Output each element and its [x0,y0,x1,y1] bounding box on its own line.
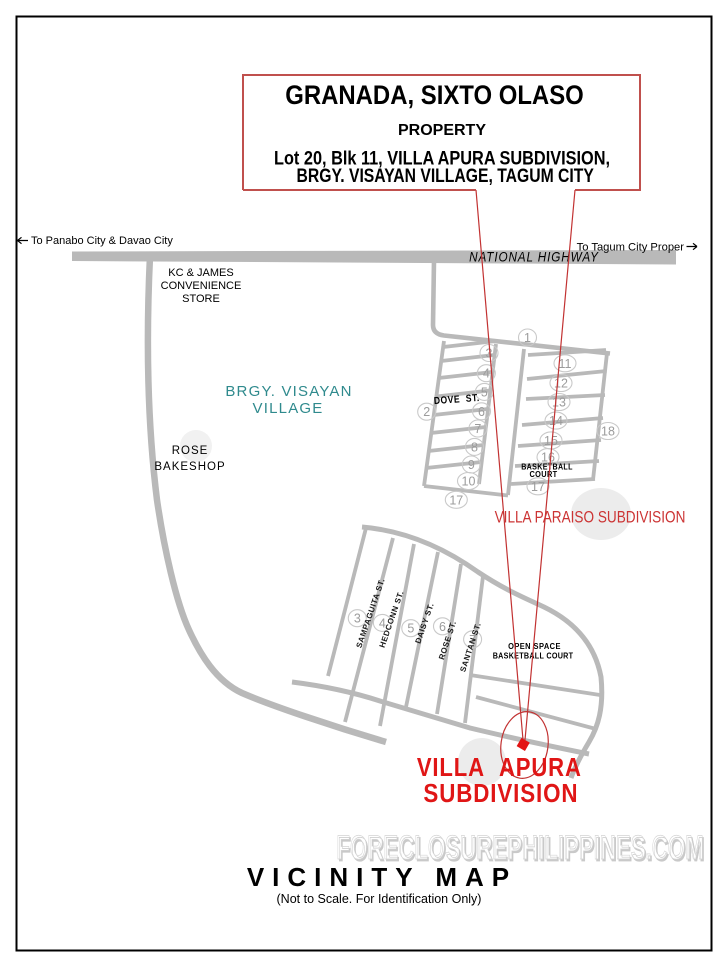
svg-text:18: 18 [601,425,615,439]
svg-text:15: 15 [544,434,558,448]
svg-text:STORE: STORE [182,293,220,305]
svg-text:9: 9 [468,458,475,472]
svg-text:3: 3 [354,612,361,626]
svg-text:COURT: COURT [530,470,558,480]
svg-text:GRANADA, SIXTO OLASO: GRANADA, SIXTO OLASO [285,81,584,111]
svg-text:(Not to Scale. For Identificat: (Not to Scale. For Identification Only) [277,892,482,906]
svg-text:2: 2 [423,405,430,419]
svg-text:14: 14 [549,414,563,428]
svg-text:1: 1 [524,331,531,345]
svg-text:To Panabo City & Davao City: To Panabo City & Davao City [31,235,173,247]
svg-text:CONVENIENCE: CONVENIENCE [161,280,242,292]
svg-text:11: 11 [559,357,572,371]
svg-text:5: 5 [481,385,488,399]
svg-text:7: 7 [474,422,481,436]
svg-text:OPEN SPACE: OPEN SPACE [508,642,561,652]
svg-text:BAKESHOP: BAKESHOP [154,461,225,473]
svg-text:4: 4 [483,367,490,381]
svg-text:VILLA APURA: VILLA APURA [417,754,582,783]
svg-text:KC & JAMES: KC & JAMES [168,267,233,279]
svg-text:ROSE: ROSE [172,445,209,457]
svg-text:VILLAGE: VILLAGE [253,400,324,417]
svg-text:BRGY. VISAYAN: BRGY. VISAYAN [225,383,352,400]
svg-text:VILLA PARAISO SUBDIVISION: VILLA PARAISO SUBDIVISION [495,508,686,527]
svg-text:NATIONAL HIGHWAY: NATIONAL HIGHWAY [469,250,599,265]
svg-text:17: 17 [449,493,463,507]
svg-text:PROPERTY: PROPERTY [398,122,486,139]
svg-text:DAISY ST.: DAISY ST. [413,602,435,645]
svg-text:BRGY. VISAYAN VILLAGE, TAGUM C: BRGY. VISAYAN VILLAGE, TAGUM CITY [297,164,594,186]
svg-text:6: 6 [478,405,485,419]
svg-text:8: 8 [471,440,478,454]
svg-text:SUBDIVISION: SUBDIVISION [423,780,578,809]
svg-text:DOVE ST.: DOVE ST. [433,391,480,406]
svg-text:10: 10 [462,475,476,489]
svg-text:17: 17 [531,480,545,494]
svg-text:5: 5 [407,622,414,636]
svg-text:12: 12 [554,377,568,391]
svg-text:13: 13 [552,396,566,410]
svg-text:VICINITY MAP: VICINITY MAP [247,862,517,892]
